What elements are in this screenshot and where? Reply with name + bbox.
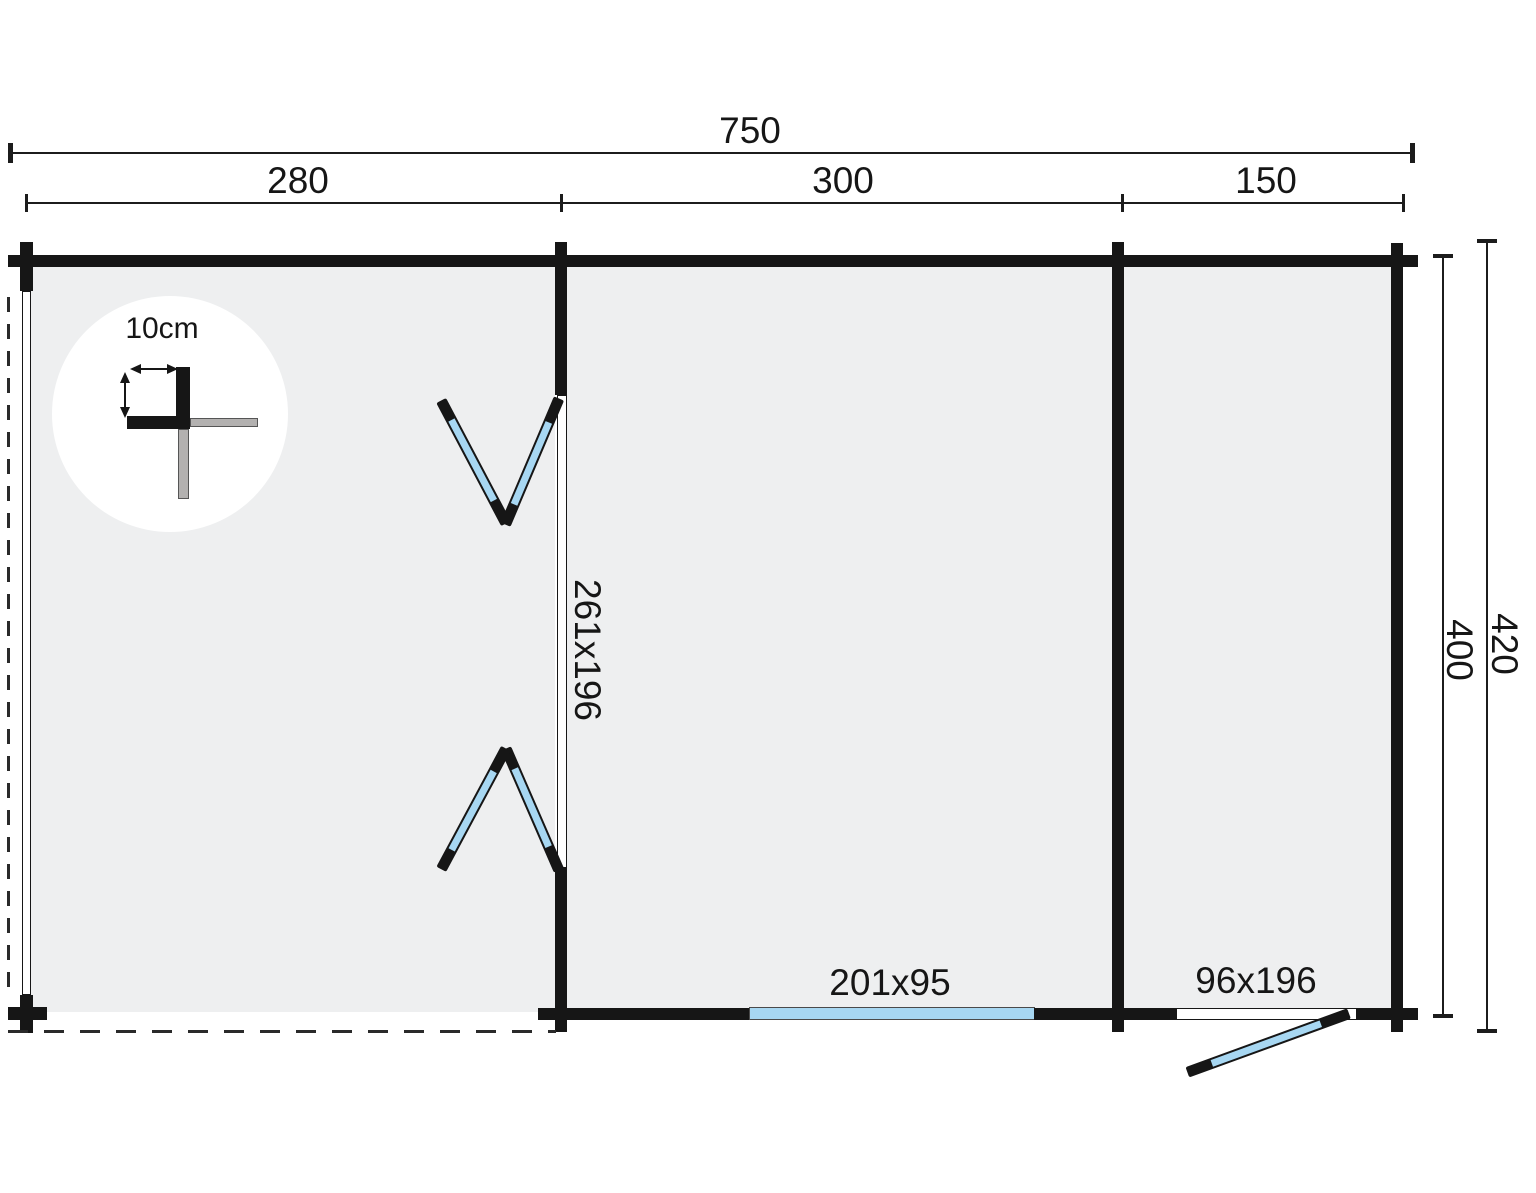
- door-glass: [1211, 1020, 1322, 1066]
- detail-log-vertical: [178, 429, 189, 499]
- veranda-open-left-edge: [22, 291, 31, 995]
- dim-tick: [8, 143, 13, 163]
- outer-wall-bottom-right: [1356, 1008, 1418, 1020]
- dim-line-sections: [26, 202, 1404, 204]
- dim-tick: [1477, 1029, 1497, 1033]
- dim-label-total-width: 750: [680, 110, 820, 152]
- floor-plan: 750 280 300 150 400 420 261x196 96x196 2…: [0, 0, 1536, 1193]
- outer-wall-bottom-mid: [1034, 1008, 1176, 1020]
- side-door-label: 96x196: [1171, 960, 1341, 1002]
- outer-wall-right: [1391, 243, 1403, 1032]
- outer-wall-bottom-left: [538, 1008, 750, 1020]
- arrow-shaft: [140, 368, 168, 370]
- detail-log-horizontal: [190, 418, 258, 427]
- arrow-shaft: [124, 382, 126, 408]
- wall-detail-circle: 10cm: [52, 296, 288, 532]
- veranda-sill-bottom-left: [8, 1007, 47, 1020]
- dim-tick: [1410, 143, 1415, 163]
- dim-tick: [1477, 239, 1497, 243]
- dim-tick: [560, 194, 563, 212]
- outer-wall-top: [8, 255, 1418, 267]
- dim-label-section-1: 280: [228, 160, 368, 202]
- dim-label-section-3: 150: [1196, 160, 1336, 202]
- detail-wall-horizontal: [127, 416, 190, 429]
- dim-label-depth-overall: 420: [1483, 579, 1525, 709]
- wall-thickness-label: 10cm: [97, 308, 227, 350]
- dim-tick: [1433, 1014, 1453, 1018]
- dim-label-depth-inner: 400: [1438, 585, 1480, 715]
- dim-label-section-2: 300: [773, 160, 913, 202]
- arrow-right-icon: [167, 364, 178, 374]
- veranda-dashed-left: [7, 297, 10, 995]
- dim-tick: [25, 194, 28, 212]
- dim-tick: [1402, 194, 1405, 212]
- partition-wall-door-top: [555, 242, 567, 395]
- veranda-dashed-bottom: [8, 1030, 556, 1033]
- dim-line-total-width: [10, 152, 1413, 154]
- window-201x95: [749, 1007, 1035, 1020]
- double-door-label: 261x196: [566, 565, 608, 735]
- dim-tick: [1433, 254, 1453, 258]
- veranda-post-top-left: [20, 242, 33, 291]
- window-label: 201x95: [805, 962, 975, 1004]
- arrow-down-icon: [120, 407, 130, 418]
- side-room-floor: [1124, 267, 1391, 1008]
- main-room-floor: [567, 267, 1112, 1008]
- partition-wall-side-room: [1112, 242, 1124, 1032]
- dim-tick: [1121, 194, 1124, 212]
